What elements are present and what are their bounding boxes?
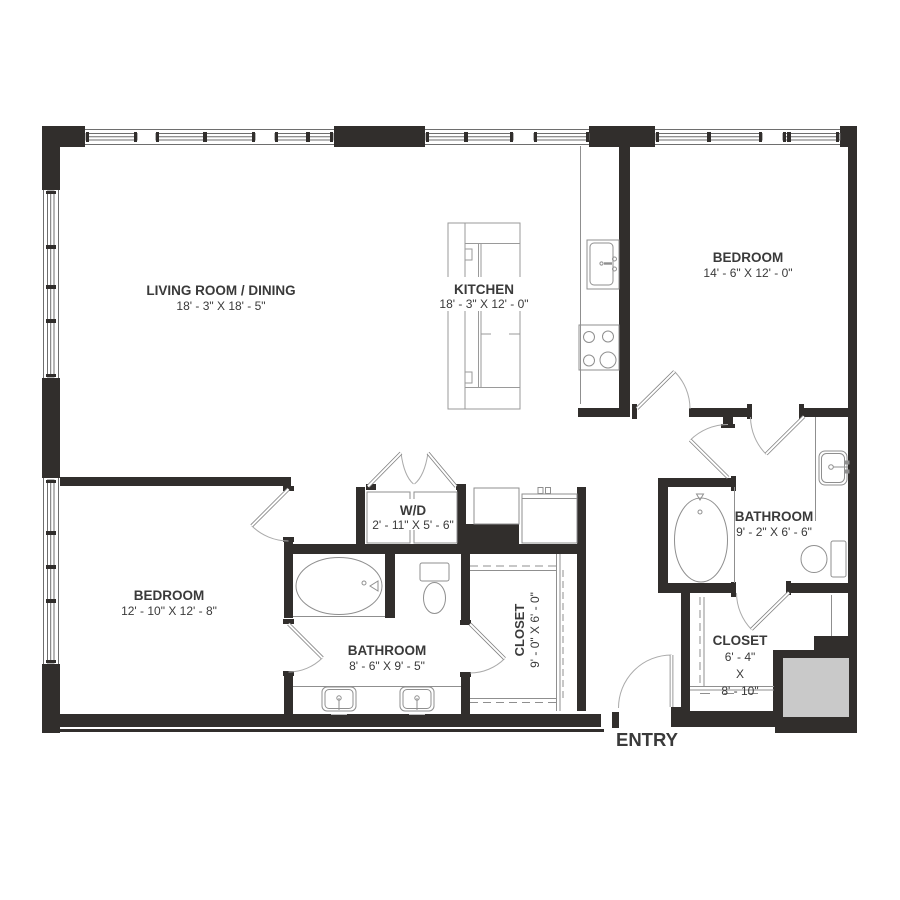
svg-text:BEDROOM: BEDROOM	[134, 588, 205, 603]
svg-text:2' - 11" X 5' - 6": 2' - 11" X 5' - 6"	[372, 518, 454, 532]
svg-text:14' - 6" X 12' - 0": 14' - 6" X 12' - 0"	[703, 266, 792, 280]
svg-text:12' - 10" X 12' - 8": 12' - 10" X 12' - 8"	[121, 604, 217, 618]
svg-text:W/D: W/D	[400, 503, 426, 518]
svg-text:KITCHEN: KITCHEN	[454, 282, 514, 297]
svg-text:LIVING ROOM / DINING: LIVING ROOM / DINING	[146, 283, 295, 298]
svg-text:8' - 10": 8' - 10"	[721, 684, 758, 698]
svg-text:8' - 6" X 9' - 5": 8' - 6" X 9' - 5"	[349, 659, 425, 673]
svg-text:CLOSET: CLOSET	[713, 633, 769, 648]
svg-text:18' - 3" X 12' - 0": 18' - 3" X 12' - 0"	[439, 297, 528, 311]
svg-text:18' - 3" X 18' - 5": 18' - 3" X 18' - 5"	[176, 299, 265, 313]
svg-text:6' - 4": 6' - 4"	[725, 650, 756, 664]
svg-text:CLOSET: CLOSET	[512, 604, 527, 657]
svg-text:9' - 2" X 6' - 6": 9' - 2" X 6' - 6"	[736, 525, 812, 539]
svg-text:BATHROOM: BATHROOM	[735, 509, 814, 524]
svg-text:ENTRY: ENTRY	[616, 729, 679, 750]
svg-text:X: X	[736, 667, 744, 681]
svg-text:BATHROOM: BATHROOM	[348, 643, 427, 658]
svg-text:BEDROOM: BEDROOM	[713, 250, 784, 265]
svg-text:9' - 0" X 6' - 0": 9' - 0" X 6' - 0"	[528, 592, 542, 668]
